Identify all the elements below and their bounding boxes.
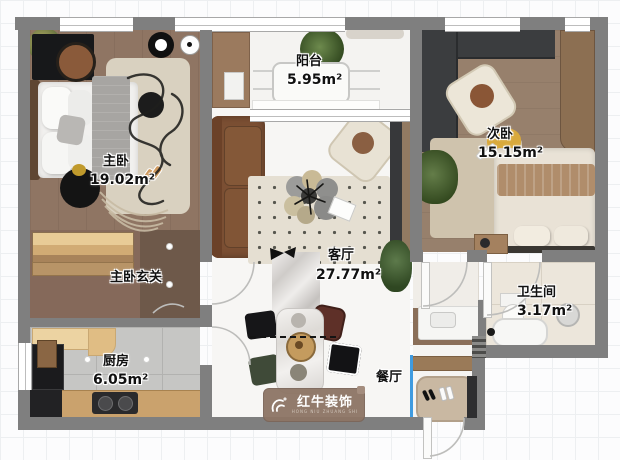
room-label-second-bedroom: 次卧 <box>487 123 513 142</box>
dining-chair-right-bottom <box>326 342 362 376</box>
hall-wardrobe <box>32 232 134 264</box>
balcony-sliding-door <box>250 109 410 122</box>
room-area-balcony: 5.95m² <box>287 72 342 88</box>
room-area-living-room: 27.77m² <box>316 267 381 283</box>
wall-bath-top-1 <box>410 250 423 262</box>
entry-shelf <box>412 356 474 371</box>
room-area-bathroom: 3.17m² <box>517 303 572 319</box>
wall-left-upper <box>18 17 30 343</box>
kitchen-burner-2 <box>118 396 133 411</box>
living-cabinet-panel <box>224 72 244 100</box>
wall-top-2 <box>133 17 175 30</box>
watermark-sub-text: HONG NIU ZHUANG SHI <box>292 410 358 414</box>
master-desk-chair <box>56 42 96 82</box>
master-ceiling-lamp-center <box>155 39 167 51</box>
dining-plate-top <box>291 313 306 328</box>
room-label-bathroom: 卫生间 <box>517 281 556 300</box>
dining-plate-bottom <box>290 364 307 381</box>
door-arc-entry <box>430 418 464 456</box>
hall-light-2 <box>166 281 173 288</box>
room-label-balcony: 阳台 <box>296 50 322 69</box>
kitchen-board <box>37 340 57 368</box>
entry-shoe-cabinet <box>467 376 477 418</box>
dining-centerpiece-dot <box>295 341 303 349</box>
second-bed-pillow-2 <box>554 226 588 246</box>
second-cabinet-right <box>560 30 595 152</box>
tv-console <box>390 118 402 258</box>
window-kitchen-left <box>18 343 32 390</box>
room-label-master-bedroom: 主卧 <box>103 150 129 169</box>
master-bed-cushion <box>56 114 86 146</box>
bath-dark-item <box>487 328 495 336</box>
entry-blue-divider <box>410 355 413 417</box>
bathtub <box>492 318 548 347</box>
master-small-lamp-dot <box>187 42 192 47</box>
kitchen-cabinet-dark <box>30 390 62 417</box>
master-gold-decor <box>72 164 86 176</box>
room-area-master-bedroom: 19.02m² <box>90 172 155 188</box>
second-bed-pillow-1 <box>514 226 550 246</box>
wall-bottom-main <box>18 417 426 430</box>
watermark-notch <box>357 386 365 394</box>
washbasin-sink <box>430 312 456 328</box>
wall-bath-bottom <box>480 345 608 358</box>
coffee-table-circle-6 <box>297 206 315 224</box>
second-desk-item <box>480 238 490 248</box>
wall-top-4 <box>520 17 565 30</box>
room-label-dining-room: 餐厅 <box>376 366 402 385</box>
kitchen-burner-1 <box>98 396 113 411</box>
duct-vent <box>472 336 486 358</box>
second-bed-throw <box>497 164 595 196</box>
wall-balcony-second <box>410 17 422 252</box>
wall-master-living <box>200 30 212 262</box>
window-second-2 <box>565 17 590 32</box>
room-label-master-hall: 主卧玄关 <box>110 266 162 285</box>
entry-door-leaf <box>423 417 432 459</box>
wall-bath-top-2 <box>467 250 487 262</box>
kitchen-light-1 <box>84 356 91 363</box>
bathroom-door-leaf <box>483 262 492 318</box>
watermark-badge: 红牛装饰 HONG NIU ZHUANG SHI <box>263 388 365 422</box>
room-area-kitchen: 6.05m² <box>93 372 148 388</box>
wall-hall-kitchen <box>30 318 200 327</box>
wall-right <box>595 17 608 358</box>
window-second-1 <box>445 17 520 32</box>
master-pouf <box>138 92 164 118</box>
window-master-top <box>60 17 133 32</box>
wall-kitchen-living <box>200 365 212 417</box>
floor-plan-canvas: { "document": {"type": "apartment-floor-… <box>0 0 620 460</box>
wall-top-3 <box>345 17 445 30</box>
hall-light-1 <box>166 243 173 250</box>
wall-bath-top-3 <box>542 250 608 262</box>
living-plant <box>380 240 412 292</box>
dining-chair-left-top <box>244 310 277 340</box>
room-label-kitchen: 厨房 <box>103 350 129 369</box>
watermark-brand-text: 红牛装饰 <box>297 396 353 409</box>
kitchen-light-2 <box>143 356 150 363</box>
wall-hall-living <box>200 305 212 327</box>
hallway-door-leaf <box>421 262 430 309</box>
second-armchair-pillow <box>470 84 494 108</box>
coffee-table-center <box>301 188 317 204</box>
room-label-living-room: 客厅 <box>328 244 354 263</box>
bull-logo-icon <box>270 396 288 414</box>
room-area-second-bedroom: 15.15m² <box>478 145 543 161</box>
